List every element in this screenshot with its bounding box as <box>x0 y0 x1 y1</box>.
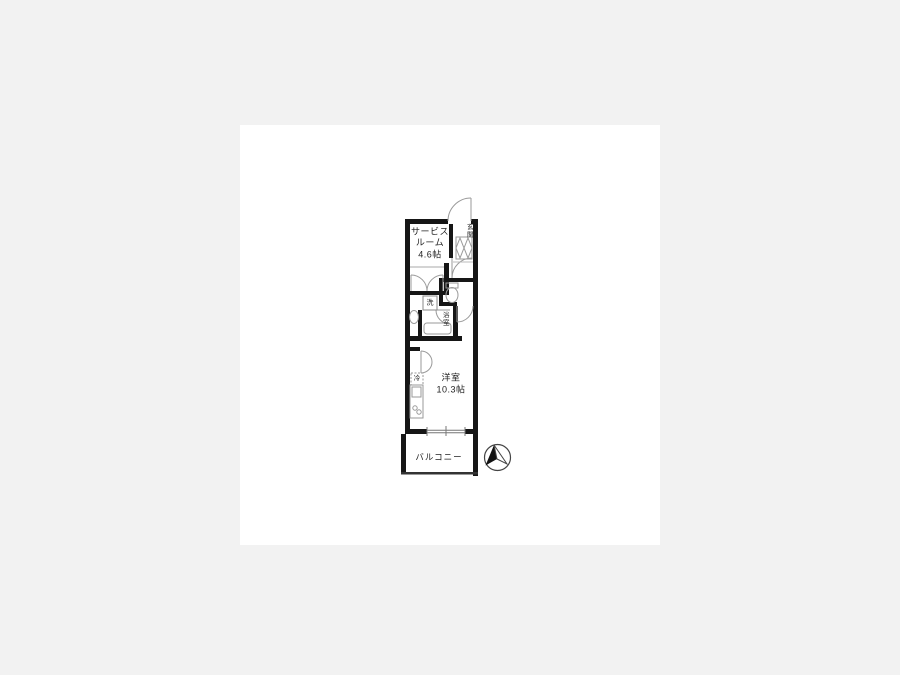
service-room-label-line2: ルーム <box>416 239 444 248</box>
entrance-label: 玄関 <box>465 224 472 239</box>
balcony-window <box>427 426 465 436</box>
floorplan-card: サービス ルーム 4.6帖 玄関 洗 浴室 冷 洋室 10.3帖 バルコニー <box>240 125 660 545</box>
western-room-label: 洋室 <box>441 374 460 383</box>
bathroom-label: 浴室 <box>441 312 448 327</box>
entrance-door-arc <box>448 198 471 221</box>
service-room-door-arc <box>452 258 472 278</box>
north-arrow-icon <box>485 445 511 471</box>
service-room-size-label: 4.6帖 <box>418 251 442 260</box>
page-background: { "colors": { "background": "#f2f2f2", "… <box>0 0 900 675</box>
laundry-label: 洗 <box>427 300 434 307</box>
floorplan-drawing <box>240 125 660 545</box>
refrigerator-label: 冷 <box>414 376 421 383</box>
balcony-label: バルコニー <box>415 453 462 462</box>
room-closet-fan <box>421 362 432 373</box>
closet-door-fan <box>411 275 427 291</box>
toilet-door-arc <box>457 306 473 322</box>
kitchen-counter <box>410 385 423 418</box>
room-closet-fan <box>421 351 432 362</box>
shoe-cabinet <box>456 237 472 259</box>
wash-basin <box>410 311 419 324</box>
western-room-size-label: 10.3帖 <box>436 386 465 395</box>
service-room-label: サービス <box>411 228 449 237</box>
